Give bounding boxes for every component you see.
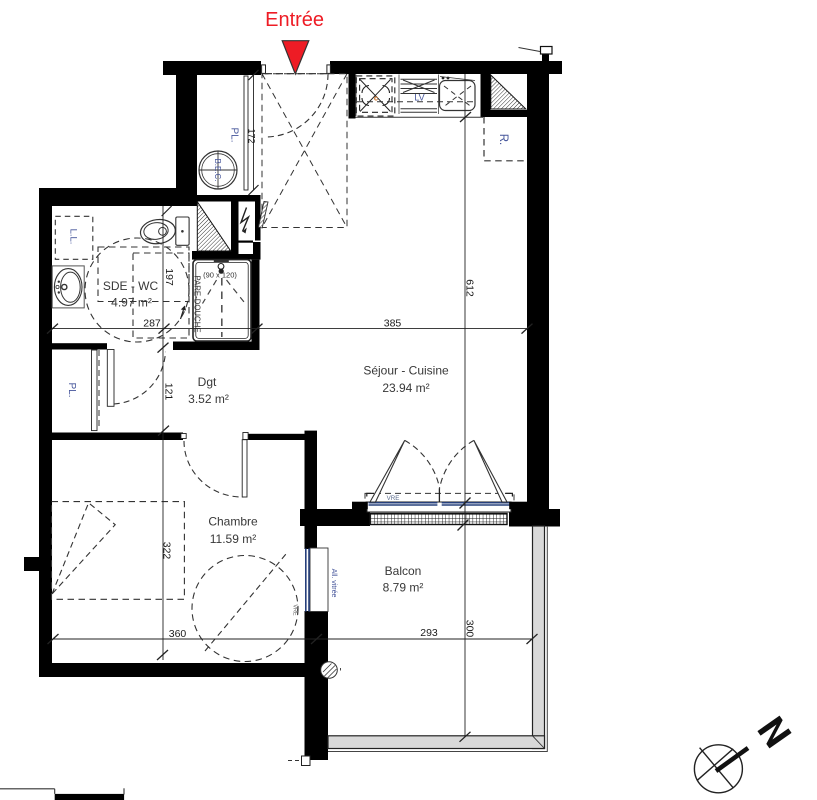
svg-text:(90 x 120): (90 x 120): [203, 271, 237, 280]
svg-text:PARE-DOUCHE: PARE-DOUCHE: [192, 275, 201, 332]
svg-text:300: 300: [463, 620, 475, 638]
svg-text:PL.: PL.: [66, 382, 77, 397]
svg-text:Entrée: Entrée: [265, 9, 324, 31]
svg-text:121: 121: [163, 383, 175, 401]
svg-text:VRE: VRE: [387, 495, 400, 502]
svg-text:197: 197: [163, 268, 175, 286]
svg-text:R.: R.: [497, 134, 509, 146]
svg-text:LV: LV: [414, 92, 424, 102]
svg-text:Séjour - Cuisine: Séjour - Cuisine: [363, 364, 449, 378]
svg-text:8.79 m²: 8.79 m²: [383, 581, 424, 595]
svg-text:322: 322: [161, 542, 173, 560]
svg-text:11.59 m²: 11.59 m²: [210, 532, 256, 546]
svg-text:4.97 m²: 4.97 m²: [111, 296, 152, 310]
svg-text:293: 293: [420, 627, 438, 639]
svg-text:B.E.C.: B.E.C.: [213, 158, 222, 181]
svg-text:All. vitrée: All. vitrée: [330, 569, 337, 598]
svg-text:172: 172: [247, 128, 257, 143]
svg-text:PL.: PL.: [229, 127, 240, 142]
svg-text:360: 360: [169, 628, 187, 640]
svg-text:287: 287: [143, 318, 161, 330]
svg-text:L.L.: L.L.: [68, 229, 79, 245]
svg-text:612: 612: [464, 279, 476, 297]
svg-text:Dgt: Dgt: [198, 375, 217, 389]
svg-text:23.94 m²: 23.94 m²: [382, 381, 429, 395]
svg-text:3.52 m²: 3.52 m²: [188, 392, 229, 406]
svg-text:VRE: VRE: [292, 604, 298, 616]
svg-text:SDE - WC: SDE - WC: [103, 279, 159, 293]
svg-text:Balcon: Balcon: [385, 564, 422, 578]
svg-text:385: 385: [384, 318, 402, 330]
svg-text:c: c: [374, 94, 378, 103]
svg-text:Chambre: Chambre: [208, 515, 258, 529]
